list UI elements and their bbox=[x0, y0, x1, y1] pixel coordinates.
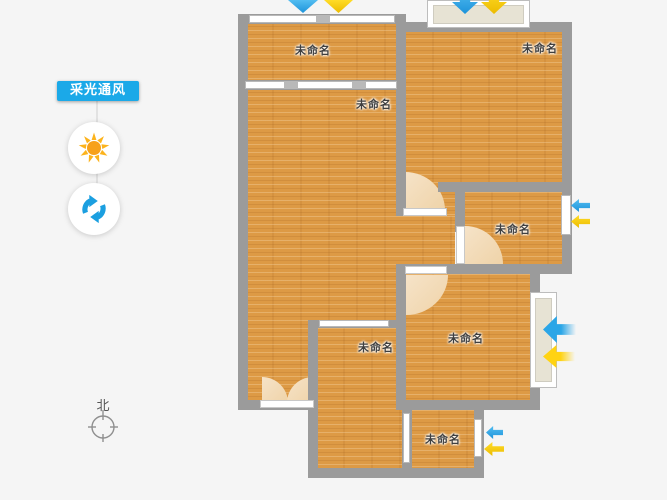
door-panel-mid-right-large bbox=[405, 266, 447, 274]
corridor-lower[interactable] bbox=[396, 216, 455, 264]
wall-midright-small-left bbox=[455, 182, 465, 232]
room-label: 未命名 bbox=[401, 431, 485, 447]
window-mullion bbox=[352, 82, 366, 88]
door-panel-top-right-room bbox=[403, 208, 447, 216]
light-arrow-icon bbox=[571, 215, 590, 228]
wind-arrow-icon bbox=[288, 0, 318, 13]
floorplan-viewer: 未命名 未命名 未命名 未命名 未命名 未命名 未命名 采光通风 bbox=[0, 0, 667, 500]
daylight-tool-button[interactable] bbox=[68, 122, 120, 174]
mode-badge[interactable]: 采光通风 bbox=[57, 81, 139, 101]
light-arrow-icon bbox=[324, 0, 353, 13]
wall-midright-large-bottom bbox=[396, 400, 540, 410]
window-top-left-room bbox=[249, 15, 395, 23]
room-living[interactable] bbox=[246, 88, 398, 320]
north-compass: 北 bbox=[84, 396, 122, 450]
bay-window-top-glass bbox=[433, 5, 524, 24]
sun-icon bbox=[76, 130, 112, 166]
room-label: 未命名 bbox=[334, 339, 418, 355]
compass-dial-icon bbox=[88, 410, 118, 442]
double-door-threshold bbox=[260, 400, 314, 408]
window-bottom-middle-room bbox=[319, 320, 389, 327]
wall-bottom-middle-left bbox=[308, 320, 318, 478]
wall-outer-right bbox=[562, 22, 572, 274]
ventilation-tool-button[interactable] bbox=[68, 183, 120, 235]
sliding-door-balcony bbox=[245, 81, 397, 89]
wind-arrow-icon bbox=[486, 426, 503, 439]
wall-outer-bottom bbox=[308, 468, 484, 478]
wall-center-vertical bbox=[396, 14, 406, 216]
room-label: 未命名 bbox=[471, 221, 555, 237]
door-panel-mid-right-small bbox=[456, 226, 465, 264]
room-label: 未命名 bbox=[498, 40, 582, 56]
window-mullion bbox=[284, 82, 298, 88]
bay-window-right-glass bbox=[535, 298, 552, 382]
refresh-icon bbox=[77, 192, 111, 226]
room-label: 未命名 bbox=[424, 330, 508, 346]
room-label: 未命名 bbox=[271, 42, 355, 58]
wall-outer-left bbox=[238, 14, 248, 410]
window-mullion bbox=[316, 16, 330, 22]
window-mid-right-small bbox=[561, 195, 571, 235]
room-label: 未命名 bbox=[332, 96, 416, 112]
wall-midright-large-left bbox=[396, 264, 406, 410]
wind-arrow-icon bbox=[571, 199, 590, 212]
light-arrow-icon bbox=[484, 442, 504, 456]
